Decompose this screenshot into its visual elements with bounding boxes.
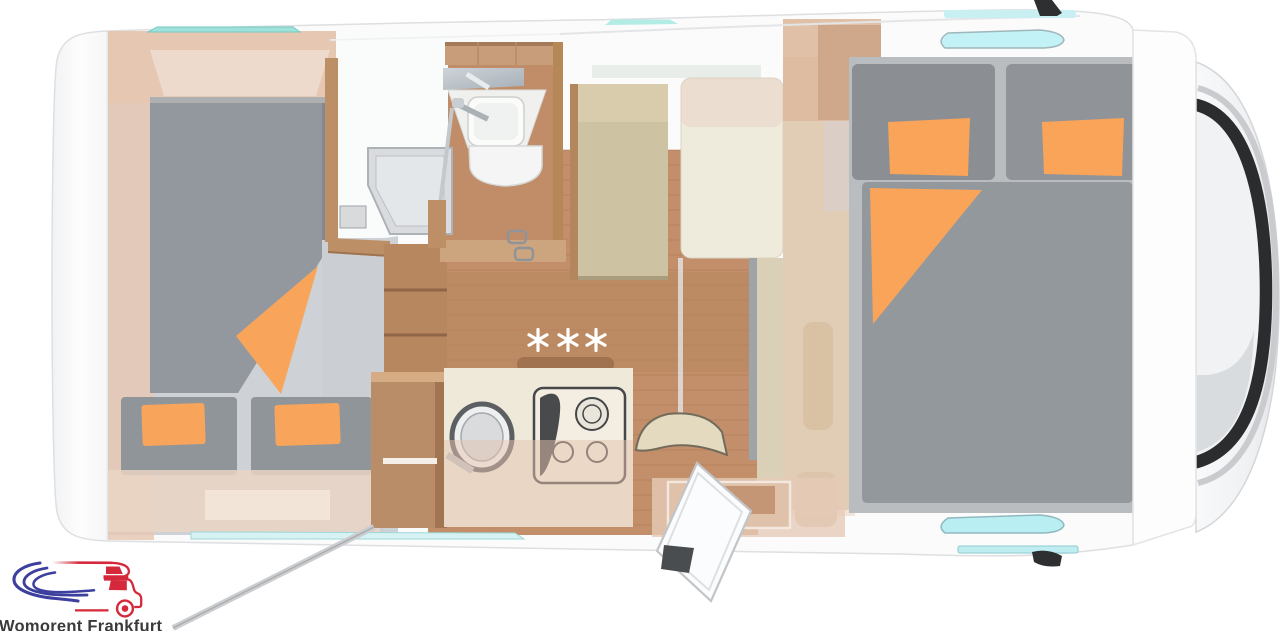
svg-text:Womorent Frankfurt: Womorent Frankfurt	[0, 618, 163, 631]
